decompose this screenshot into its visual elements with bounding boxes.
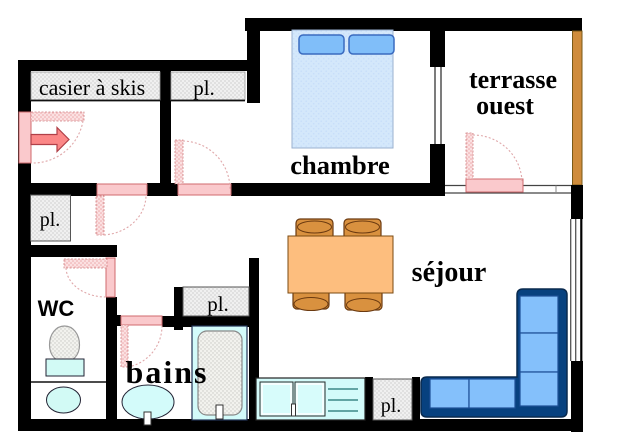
svg-text:ouest: ouest bbox=[476, 91, 534, 120]
svg-text:séjour: séjour bbox=[412, 257, 487, 288]
svg-text:terrasse: terrasse bbox=[469, 65, 557, 94]
svg-text:bains: bains bbox=[126, 354, 209, 390]
svg-text:pl.: pl. bbox=[381, 395, 402, 417]
svg-text:pl.: pl. bbox=[40, 209, 61, 231]
svg-text:WC: WC bbox=[38, 296, 75, 321]
svg-text:chambre: chambre bbox=[290, 150, 390, 180]
svg-text:pl.: pl. bbox=[193, 76, 215, 100]
svg-text:pl.: pl. bbox=[207, 292, 229, 316]
svg-text:casier à skis: casier à skis bbox=[39, 75, 145, 100]
